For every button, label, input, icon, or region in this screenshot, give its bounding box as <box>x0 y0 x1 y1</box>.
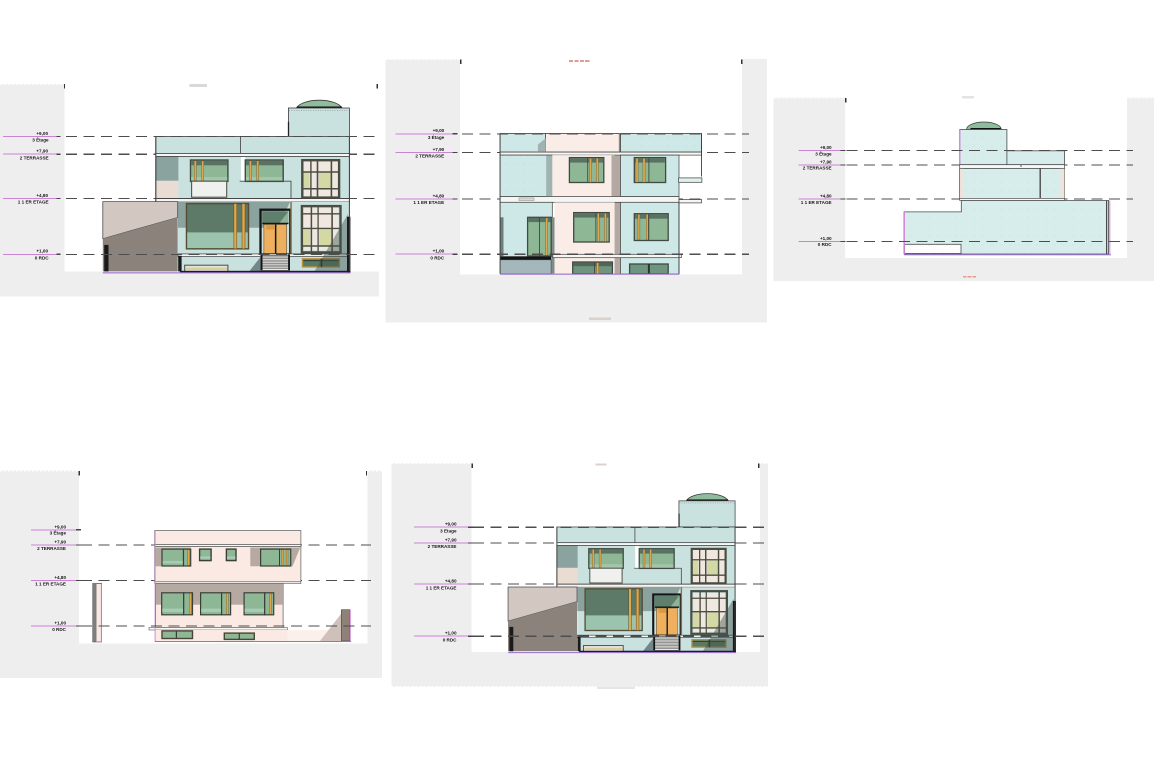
svg-text:+1,00: +1,00 <box>433 249 445 254</box>
svg-text:3 Etage: 3 Etage <box>440 528 457 533</box>
svg-text:+1,00: +1,00 <box>445 631 457 636</box>
svg-text:0 RDC: 0 RDC <box>818 242 832 247</box>
svg-text:+9,00: +9,00 <box>54 524 66 529</box>
svg-text:+9,00: +9,00 <box>433 128 445 133</box>
svg-text:3 Étage: 3 Étage <box>32 136 49 143</box>
svg-text:+9,00: +9,00 <box>36 131 48 136</box>
svg-text:0 RDC: 0 RDC <box>443 637 457 642</box>
svg-text:+4,80: +4,80 <box>445 579 457 584</box>
svg-text:0 RDC: 0 RDC <box>430 255 444 260</box>
svg-text:1 1 ER ETAGE: 1 1 ER ETAGE <box>18 200 49 205</box>
svg-text:2 TERRASSE: 2 TERRASSE <box>428 544 457 549</box>
svg-text:+7,90: +7,90 <box>445 537 457 542</box>
svg-text:+1,00: +1,00 <box>820 236 832 241</box>
svg-text:+1,00: +1,00 <box>54 621 66 626</box>
svg-text:+9,00: +9,00 <box>445 522 457 527</box>
svg-text:+7,90: +7,90 <box>820 160 832 165</box>
svg-text:3 Étage: 3 Étage <box>50 529 67 536</box>
svg-text:+4,80: +4,80 <box>820 194 832 199</box>
svg-text:1 1 ER ETAGE: 1 1 ER ETAGE <box>413 200 444 205</box>
svg-text:2 TERRASSE: 2 TERRASSE <box>20 155 49 160</box>
svg-text:+4,80: +4,80 <box>54 575 66 580</box>
svg-text:1 1 ER ETAGE: 1 1 ER ETAGE <box>35 581 66 586</box>
svg-text:2 TERRASSE: 2 TERRASSE <box>37 546 66 551</box>
svg-text:0 RDC: 0 RDC <box>52 627 66 632</box>
svg-text:+7,90: +7,90 <box>433 147 445 152</box>
svg-text:3 Étage: 3 Étage <box>815 149 832 156</box>
svg-text:+4,80: +4,80 <box>433 193 445 198</box>
svg-text:+7,90: +7,90 <box>36 149 48 154</box>
svg-text:2 TERRASSE: 2 TERRASSE <box>803 166 832 171</box>
svg-text:+7,90: +7,90 <box>54 540 66 545</box>
svg-text:2 TERRASSE: 2 TERRASSE <box>415 154 444 159</box>
svg-text:+9,00: +9,00 <box>820 145 832 150</box>
svg-text:+1,00: +1,00 <box>36 249 48 254</box>
svg-text:1 1 ER ETAGE: 1 1 ER ETAGE <box>801 200 832 205</box>
svg-text:0 RDC: 0 RDC <box>35 256 49 261</box>
svg-text:+4,80: +4,80 <box>36 193 48 198</box>
svg-text:3 Étage: 3 Étage <box>428 133 445 140</box>
svg-text:1 1 ER ETAGE: 1 1 ER ETAGE <box>426 585 457 590</box>
